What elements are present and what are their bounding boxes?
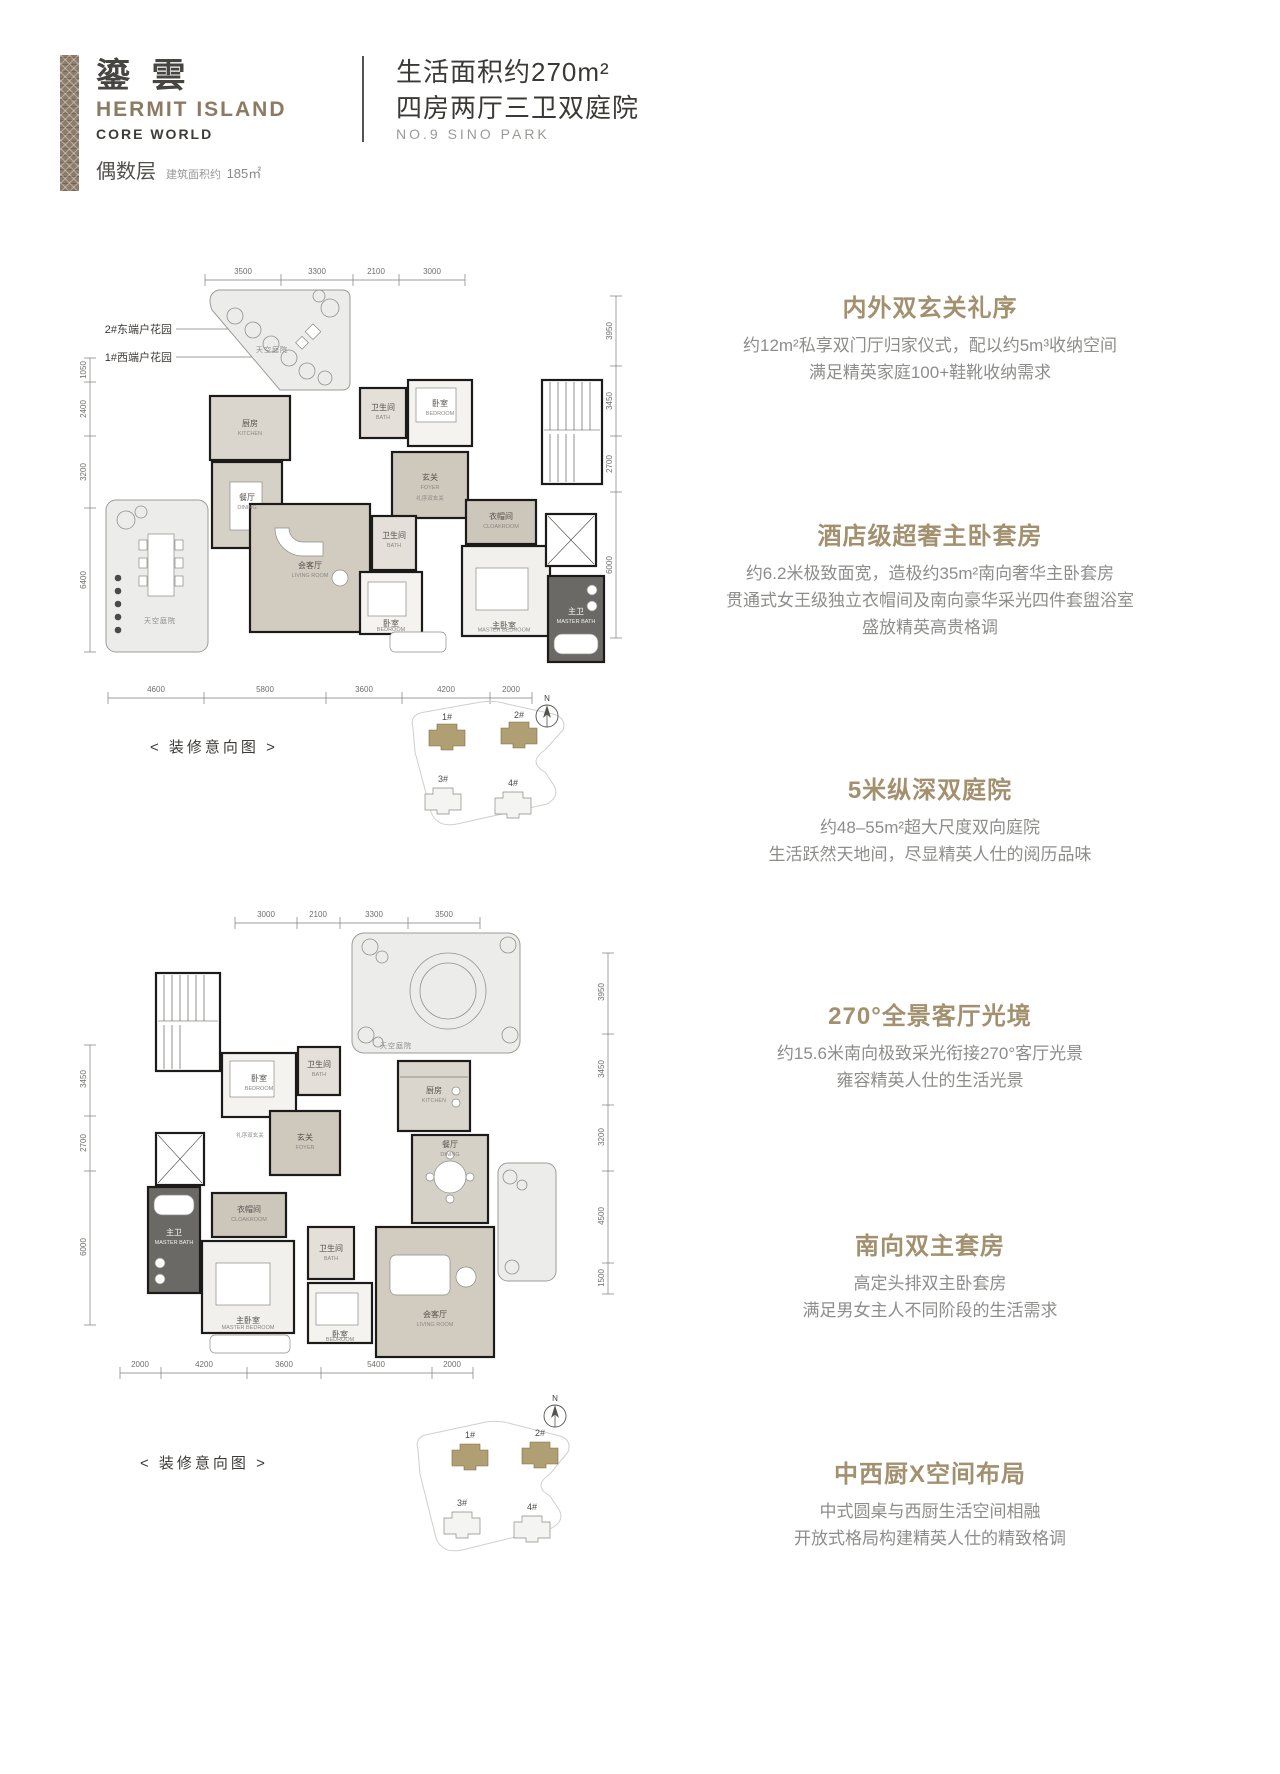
feature-line: 高定头排双主卧套房 <box>700 1270 1160 1297</box>
feature-line: 贯通式女王级独立衣帽间及南向豪华采光四件套盥浴室 <box>700 587 1160 614</box>
site-building-4: 4# <box>527 1502 537 1512</box>
feature-line: 约48–55m²超大尺度双向庭院 <box>700 814 1160 841</box>
feature-line: 生活跃然天地间，尽显精英人仕的阅历品味 <box>700 841 1160 868</box>
north-compass: N <box>544 1394 566 1427</box>
svg-text:卧室: 卧室 <box>432 398 448 408</box>
svg-text:BEDROOM: BEDROOM <box>245 1086 274 1092</box>
svg-text:KITCHEN: KITCHEN <box>422 1098 446 1104</box>
svg-text:BEDROOM: BEDROOM <box>377 627 406 633</box>
dim-label: 3450 <box>79 1070 88 1088</box>
lower-dims-bottom: 2000 4200 3600 5400 2000 <box>120 1360 473 1379</box>
svg-text:LIVING ROOM: LIVING ROOM <box>417 1322 454 1328</box>
upper-garden-terrace: 天空庭院 <box>210 290 350 390</box>
upper-floorplan: 3500 3300 2100 3000 2#东端户花园 1#西端户花园 天空庭院 <box>60 238 625 743</box>
feature-line: 雍容精英人仕的生活光景 <box>700 1067 1160 1094</box>
feature-block-double-suite: 南向双主套房 高定头排双主卧套房 满足男女主人不同阶段的生活需求 <box>700 1226 1160 1324</box>
dim-label: 1050 <box>79 361 88 379</box>
north-compass: N <box>536 694 558 727</box>
upper-site-diagram: N 1# 2# 3# 4# <box>395 692 575 840</box>
dim-label: 3450 <box>605 392 614 410</box>
callout-east-garden: 2#东端户花园 <box>105 322 172 336</box>
site-footprint-3 <box>425 788 461 814</box>
floorplan-poster: 鎏 雲 HERMIT ISLAND CORE WORLD 偶数层建筑面积约 18… <box>0 0 1280 1774</box>
svg-text:MASTER BEDROOM: MASTER BEDROOM <box>222 1325 275 1331</box>
svg-text:KITCHEN: KITCHEN <box>238 431 262 437</box>
svg-text:主卧室: 主卧室 <box>236 1315 260 1325</box>
floor-label: 偶数层 <box>96 161 156 183</box>
feature-line: 约6.2米极致面宽，造极约35m²南向奢华主卧套房 <box>700 560 1160 587</box>
dim-label: 3950 <box>605 322 614 340</box>
svg-text:MASTER BATH: MASTER BATH <box>557 619 596 625</box>
dim-label: 4200 <box>195 1360 213 1369</box>
feature-heading: 5米纵深双庭院 <box>700 770 1160 805</box>
stairs <box>542 380 602 484</box>
svg-text:厨房: 厨房 <box>426 1085 442 1095</box>
area-label: 建筑面积约 <box>166 169 221 181</box>
dim-label: 2100 <box>309 910 327 919</box>
site-building-4: 4# <box>508 778 518 788</box>
feature-heading: 南向双主套房 <box>700 1226 1160 1261</box>
svg-text:卫生间: 卫生间 <box>319 1243 343 1253</box>
svg-text:卧室: 卧室 <box>251 1073 267 1083</box>
dim-label: 3600 <box>275 1360 293 1369</box>
feature-heading: 270°全景客厅光境 <box>700 996 1160 1031</box>
dim-label: 2700 <box>605 455 614 473</box>
feature-line: 中式圆桌与西厨生活空间相融 <box>700 1498 1160 1525</box>
dim-label: 3000 <box>257 910 275 919</box>
feature-block-kitchen: 中西厨X空间布局 中式圆桌与西厨生活空间相融 开放式格局构建精英人仕的精致格调 <box>700 1454 1160 1552</box>
svg-text:卫生间: 卫生间 <box>307 1059 331 1069</box>
page-title-project: NO.9 SINO PARK <box>396 126 550 142</box>
site-building-1: 1# <box>442 712 452 722</box>
svg-text:玄关: 玄关 <box>422 472 438 482</box>
site-building-2: 2# <box>514 710 524 720</box>
side-terrace <box>498 1163 556 1281</box>
svg-text:厨房: 厨房 <box>242 418 258 428</box>
cloakroom-room <box>212 1193 286 1237</box>
bath-room <box>360 388 406 438</box>
feature-line: 约12m²私享双门厅归家仪式，配以约5m³收纳空间 <box>700 332 1160 359</box>
sky-garden-label: 天空庭院 <box>380 1041 412 1050</box>
brand-name-en: HERMIT ISLAND <box>96 98 287 122</box>
floor-info: 偶数层建筑面积约 185㎡ <box>96 155 261 184</box>
site-footprint-2 <box>522 1442 558 1468</box>
lower-plan-caption: < 装修意向图 > <box>140 1452 268 1473</box>
foyer-room <box>270 1111 340 1175</box>
dim-label: 4600 <box>147 685 165 694</box>
svg-text:礼序双玄关: 礼序双玄关 <box>416 494 444 502</box>
site-building-2: 2# <box>535 1428 545 1438</box>
feature-heading: 内外双玄关礼序 <box>700 288 1160 323</box>
dim-label: 2100 <box>367 267 385 276</box>
header-divider <box>362 56 364 142</box>
dim-label: 3600 <box>355 685 373 694</box>
site-footprint-2 <box>501 722 537 748</box>
bath-room <box>298 1047 340 1095</box>
dim-label: 3300 <box>365 910 383 919</box>
dim-label: 3000 <box>423 267 441 276</box>
svg-text:会客厅: 会客厅 <box>298 560 322 570</box>
page-title-area: 生活面积约270m² <box>396 52 610 89</box>
sky-garden-label: 天空庭院 <box>256 345 288 354</box>
callout-west-garden: 1#西端户花园 <box>105 350 172 364</box>
svg-text:FOYER: FOYER <box>421 485 440 491</box>
feature-line: 满足男女主人不同阶段的生活需求 <box>700 1297 1160 1324</box>
lower-dims-left: 3450 2700 6000 <box>79 1045 96 1325</box>
upper-left-terrace: 天空庭院 <box>106 500 208 652</box>
svg-text:CLOAKROOM: CLOAKROOM <box>231 1217 267 1223</box>
feature-block-living-light: 270°全景客厅光境 约15.6米南向极致采光衔接270°客厅光景 雍容精英人仕… <box>700 996 1160 1094</box>
page-title-layout: 四房两厅三卫双庭院 <box>396 88 639 125</box>
dim-label: 2000 <box>443 1360 461 1369</box>
svg-text:BATH: BATH <box>312 1072 326 1078</box>
brand-texture-bar <box>60 55 79 191</box>
svg-text:BEDROOM: BEDROOM <box>326 1337 355 1343</box>
dim-label: 1500 <box>597 1269 606 1287</box>
area-value: 185㎡ <box>227 166 262 181</box>
upper-rooms <box>210 380 604 662</box>
dim-label: 2700 <box>79 1134 88 1152</box>
feature-heading: 酒店级超奢主卧套房 <box>700 516 1160 551</box>
svg-text:FOYER: FOYER <box>296 1145 315 1151</box>
svg-text:餐厅: 餐厅 <box>442 1140 458 1149</box>
svg-text:MASTER BEDROOM: MASTER BEDROOM <box>478 628 531 634</box>
site-footprint-1 <box>452 1444 488 1470</box>
feature-line: 满足精英家庭100+鞋靴收纳需求 <box>700 359 1160 386</box>
cloakroom-room <box>466 500 536 544</box>
dim-label: 3500 <box>234 267 252 276</box>
feature-line: 约15.6米南向极致采光衔接270°客厅光景 <box>700 1040 1160 1067</box>
lower-dims-top: 3000 2100 3300 3500 <box>235 910 480 929</box>
brand-subtitle: CORE WORLD <box>96 126 213 142</box>
svg-text:玄关: 玄关 <box>297 1132 313 1142</box>
svg-text:礼序双玄关: 礼序双玄关 <box>236 1131 264 1139</box>
svg-text:BEDROOM: BEDROOM <box>426 411 455 417</box>
dim-label: 4500 <box>597 1207 606 1225</box>
sky-garden-label: 天空庭院 <box>144 616 176 625</box>
site-building-3: 3# <box>457 1498 467 1508</box>
svg-text:BATH: BATH <box>324 1256 338 1262</box>
feature-block-entry: 内外双玄关礼序 约12m²私享双门厅归家仪式，配以约5m³收纳空间 满足精英家庭… <box>700 288 1160 386</box>
svg-text:BATH: BATH <box>387 543 401 549</box>
svg-text:CLOAKROOM: CLOAKROOM <box>483 524 519 530</box>
svg-text:LIVING ROOM: LIVING ROOM <box>292 573 329 579</box>
dim-label: 6000 <box>79 1238 88 1256</box>
dim-label: 3950 <box>597 983 606 1001</box>
svg-text:主卫: 主卫 <box>166 1227 182 1237</box>
site-building-3: 3# <box>438 774 448 784</box>
svg-text:卫生间: 卫生间 <box>371 402 395 412</box>
svg-text:DINING: DINING <box>440 1152 459 1158</box>
svg-text:MASTER BATH: MASTER BATH <box>155 1240 194 1246</box>
dim-label: 3200 <box>79 463 88 481</box>
svg-text:衣帽间: 衣帽间 <box>237 1204 261 1214</box>
svg-text:BATH: BATH <box>376 415 390 421</box>
feature-line: 开放式格局构建精英人仕的精致格调 <box>700 1525 1160 1552</box>
feature-block-master-suite: 酒店级超奢主卧套房 约6.2米极致面宽，造极约35m²南向奢华主卧套房 贯通式女… <box>700 516 1160 641</box>
feature-heading: 中西厨X空间布局 <box>700 1454 1160 1489</box>
upper-plan-caption: < 装修意向图 > <box>150 736 278 757</box>
svg-text:主卫: 主卫 <box>568 606 584 616</box>
svg-text:衣帽间: 衣帽间 <box>489 511 513 521</box>
lower-floorplan: 3000 2100 3300 3500 天空庭院 <box>60 895 625 1415</box>
lower-site-diagram: N 1# 2# 3# 4# <box>390 1392 580 1567</box>
upper-dims-left: 1050 2400 3200 6400 <box>79 358 96 652</box>
dim-label: 5800 <box>256 685 274 694</box>
lower-garden-terrace: 天空庭院 <box>352 933 520 1053</box>
site-footprint-1 <box>429 724 465 750</box>
dim-label: 2000 <box>131 1360 149 1369</box>
svg-text:餐厅: 餐厅 <box>239 493 255 502</box>
svg-text:N: N <box>552 1394 558 1403</box>
svg-text:会客厅: 会客厅 <box>423 1309 447 1319</box>
kitchen-room <box>210 396 290 460</box>
kitchen-room <box>398 1061 470 1131</box>
site-footprint-4 <box>495 792 531 818</box>
lower-dims-right: 3950 3450 3200 4500 1500 <box>597 953 614 1294</box>
svg-text:DINING: DINING <box>237 505 256 511</box>
feature-line: 盛放精英高贵格调 <box>700 614 1160 641</box>
svg-text:N: N <box>544 694 550 703</box>
upper-dims-right: 3950 3450 2700 6000 <box>605 296 622 638</box>
dim-label: 6000 <box>605 556 614 574</box>
site-footprint-3 <box>444 1512 480 1538</box>
site-building-1: 1# <box>465 1430 475 1440</box>
brand-name-cn: 鎏 雲 <box>96 48 191 97</box>
dim-label: 3300 <box>308 267 326 276</box>
dim-label: 6400 <box>79 571 88 589</box>
bath-room <box>308 1227 354 1279</box>
svg-text:卫生间: 卫生间 <box>382 530 406 540</box>
feature-block-courtyard: 5米纵深双庭院 约48–55m²超大尺度双向庭院 生活跃然天地间，尽显精英人仕的… <box>700 770 1160 868</box>
site-footprint-4 <box>514 1516 550 1542</box>
dim-label: 3450 <box>597 1060 606 1078</box>
dim-label: 3200 <box>597 1128 606 1146</box>
dim-label: 2400 <box>79 400 88 418</box>
upper-dims-top: 3500 3300 2100 3000 <box>205 267 465 286</box>
dim-label: 3500 <box>435 910 453 919</box>
dim-label: 5400 <box>367 1360 385 1369</box>
